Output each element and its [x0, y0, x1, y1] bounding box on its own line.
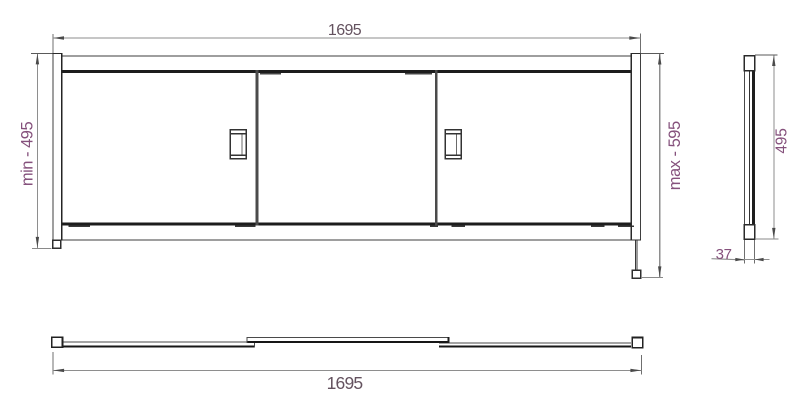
svg-text:495: 495 — [774, 128, 791, 153]
svg-text:37: 37 — [716, 246, 732, 263]
svg-text:1695: 1695 — [328, 22, 362, 39]
svg-text:1695: 1695 — [327, 373, 363, 393]
svg-text:min - 495: min - 495 — [19, 122, 37, 187]
svg-text:max - 595: max - 595 — [666, 121, 684, 190]
